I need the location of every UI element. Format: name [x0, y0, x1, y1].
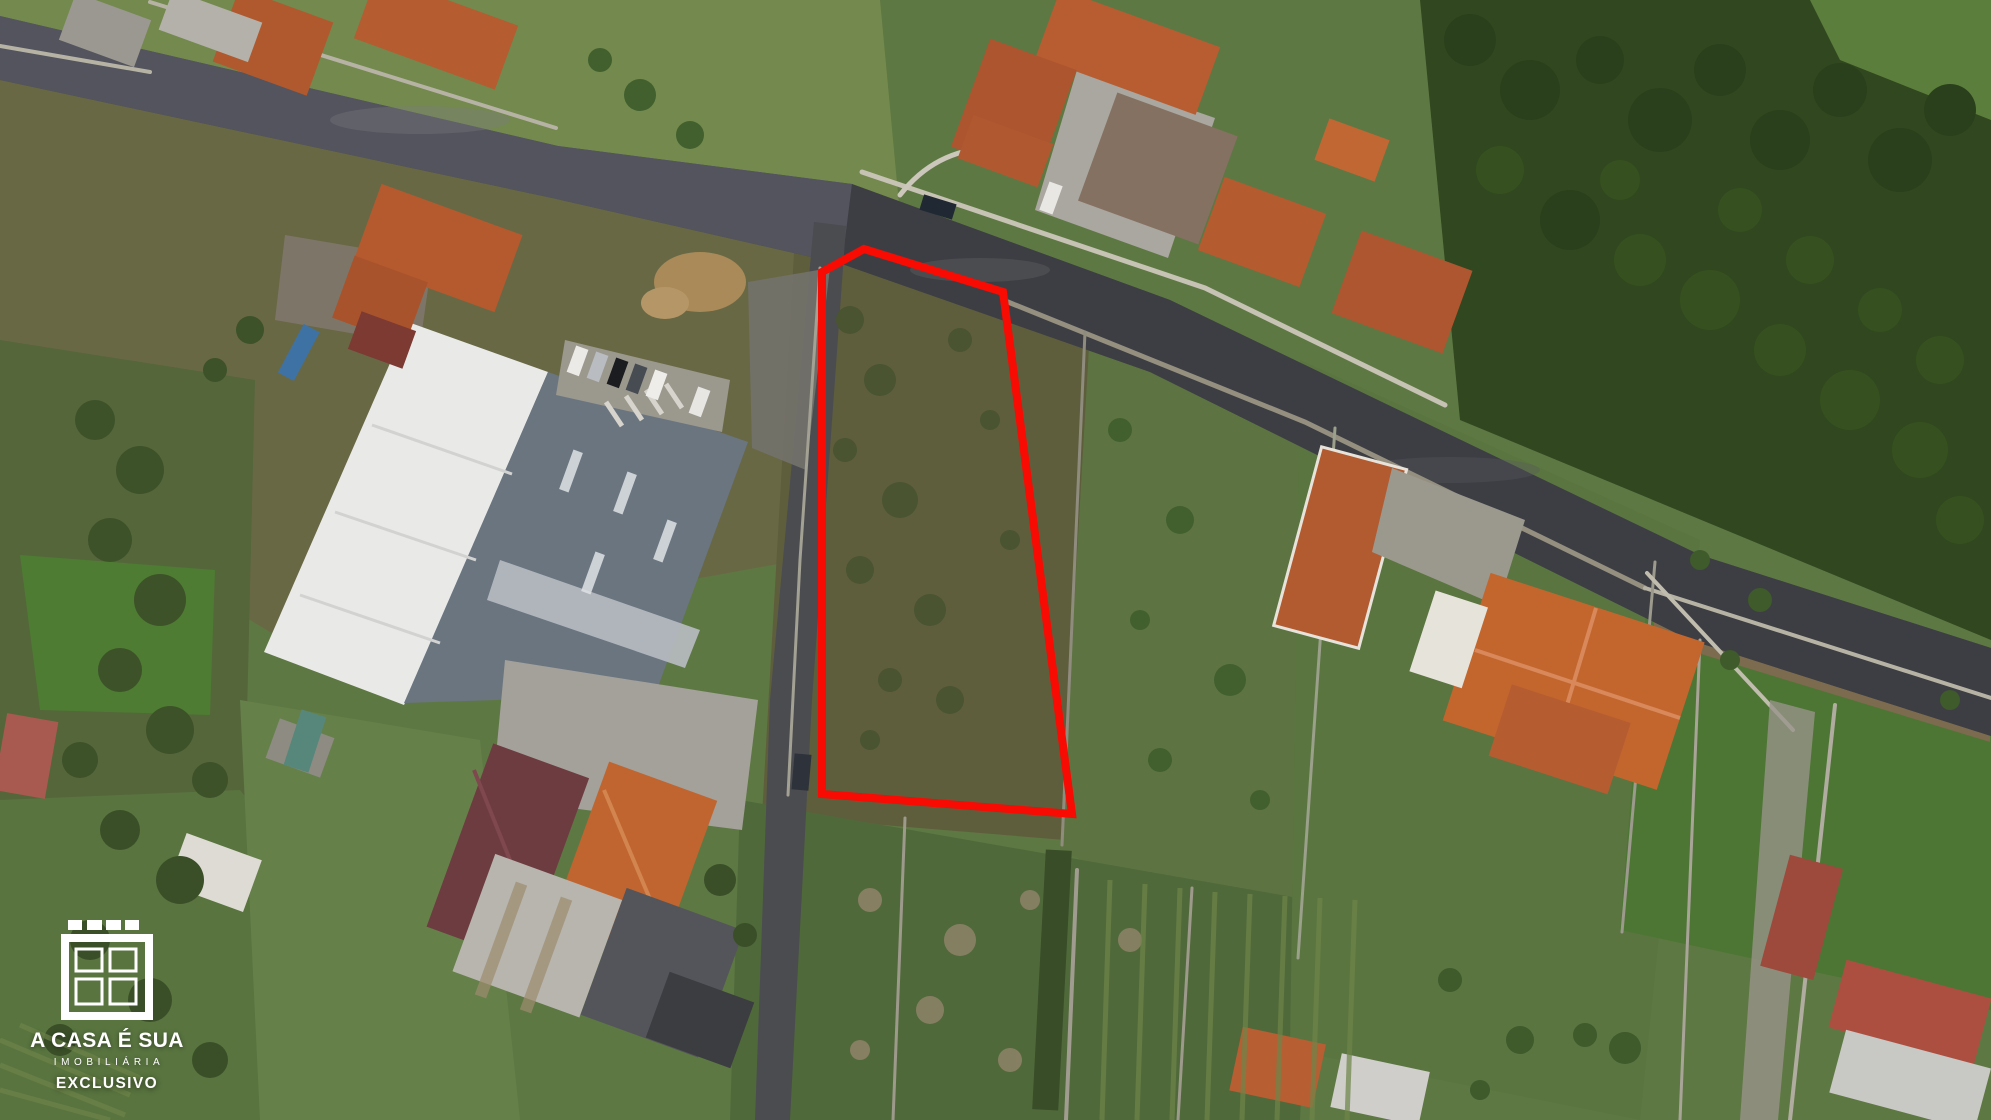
- tree: [1500, 60, 1560, 120]
- logo-pane: [76, 979, 102, 1004]
- bush: [878, 668, 902, 692]
- tree: [203, 358, 227, 382]
- tree: [1813, 63, 1867, 117]
- tree: [116, 446, 164, 494]
- bush: [1506, 1026, 1534, 1054]
- logo-battlement-squares: [68, 920, 139, 930]
- tree: [1820, 370, 1880, 430]
- tree: [850, 1040, 870, 1060]
- tree: [1868, 128, 1932, 192]
- logo-square: [87, 920, 102, 930]
- tree: [1540, 190, 1600, 250]
- exclusive-badge: EXCLUSIVO: [56, 1075, 158, 1093]
- tree: [1936, 496, 1984, 544]
- bush: [948, 328, 972, 352]
- tree: [1600, 160, 1640, 200]
- bush: [864, 364, 896, 396]
- tree: [1892, 422, 1948, 478]
- tree: [1694, 44, 1746, 96]
- tree: [1476, 146, 1524, 194]
- tree: [98, 648, 142, 692]
- tree: [704, 864, 736, 896]
- bush: [676, 121, 704, 149]
- tree: [1614, 234, 1666, 286]
- bush: [1940, 690, 1960, 710]
- tree: [998, 1048, 1022, 1072]
- tree: [858, 888, 882, 912]
- bush: [1214, 664, 1246, 696]
- tree: [134, 574, 186, 626]
- tree: [1786, 236, 1834, 284]
- bush: [1438, 968, 1462, 992]
- bush: [1690, 550, 1710, 570]
- tree: [1444, 14, 1496, 66]
- tree: [100, 810, 140, 850]
- logo-pane: [110, 979, 136, 1004]
- bush: [860, 730, 880, 750]
- bush: [1470, 1080, 1490, 1100]
- logo-square: [68, 920, 82, 930]
- tree: [192, 762, 228, 798]
- bush: [1573, 1023, 1597, 1047]
- tree: [75, 400, 115, 440]
- bush: [914, 594, 946, 626]
- dirt-mound: [641, 287, 689, 319]
- logo-pane: [76, 949, 102, 971]
- bush: [980, 410, 1000, 430]
- tree: [1924, 84, 1976, 136]
- tree: [944, 924, 976, 956]
- bush: [833, 438, 857, 462]
- agency-name: A CASA É SUA: [30, 1029, 184, 1053]
- tree: [156, 856, 204, 904]
- bush: [1000, 530, 1020, 550]
- tree: [1754, 324, 1806, 376]
- tree: [192, 1042, 228, 1078]
- real-estate-listing-photo: A CASA É SUA IMOBILIÁRIA EXCLUSIVO: [0, 0, 1991, 1120]
- logo-square: [106, 920, 121, 930]
- tree: [1750, 110, 1810, 170]
- tree: [1576, 36, 1624, 84]
- agency-watermark: A CASA É SUA IMOBILIÁRIA EXCLUSIVO: [28, 920, 186, 1093]
- tree: [1718, 188, 1762, 232]
- bush: [624, 79, 656, 111]
- tree: [236, 316, 264, 344]
- tree: [1680, 270, 1740, 330]
- bush: [1250, 790, 1270, 810]
- bush: [1148, 748, 1172, 772]
- bush: [1108, 418, 1132, 442]
- bush: [836, 306, 864, 334]
- tree: [88, 518, 132, 562]
- logo-square: [125, 920, 139, 930]
- tree: [1858, 288, 1902, 332]
- palm-tree: [1609, 1032, 1641, 1064]
- logo-window-panes: [76, 949, 136, 1004]
- logo-pane: [110, 949, 136, 971]
- bush: [882, 482, 918, 518]
- bush: [1166, 506, 1194, 534]
- tree: [916, 996, 944, 1024]
- window-logo-icon: [61, 920, 153, 1020]
- bush: [1720, 650, 1740, 670]
- tree: [1118, 928, 1142, 952]
- bush: [846, 556, 874, 584]
- tree: [146, 706, 194, 754]
- tree: [62, 742, 98, 778]
- bush: [936, 686, 964, 714]
- tree: [1628, 88, 1692, 152]
- tree: [1020, 890, 1040, 910]
- aerial-photo: [0, 0, 1991, 1120]
- tree: [733, 923, 757, 947]
- car: [791, 753, 811, 790]
- road-wear-patch: [330, 106, 510, 134]
- bush: [588, 48, 612, 72]
- bush: [1748, 588, 1772, 612]
- tree: [1916, 336, 1964, 384]
- agency-tagline: IMOBILIÁRIA: [50, 1057, 165, 1068]
- bush: [1130, 610, 1150, 630]
